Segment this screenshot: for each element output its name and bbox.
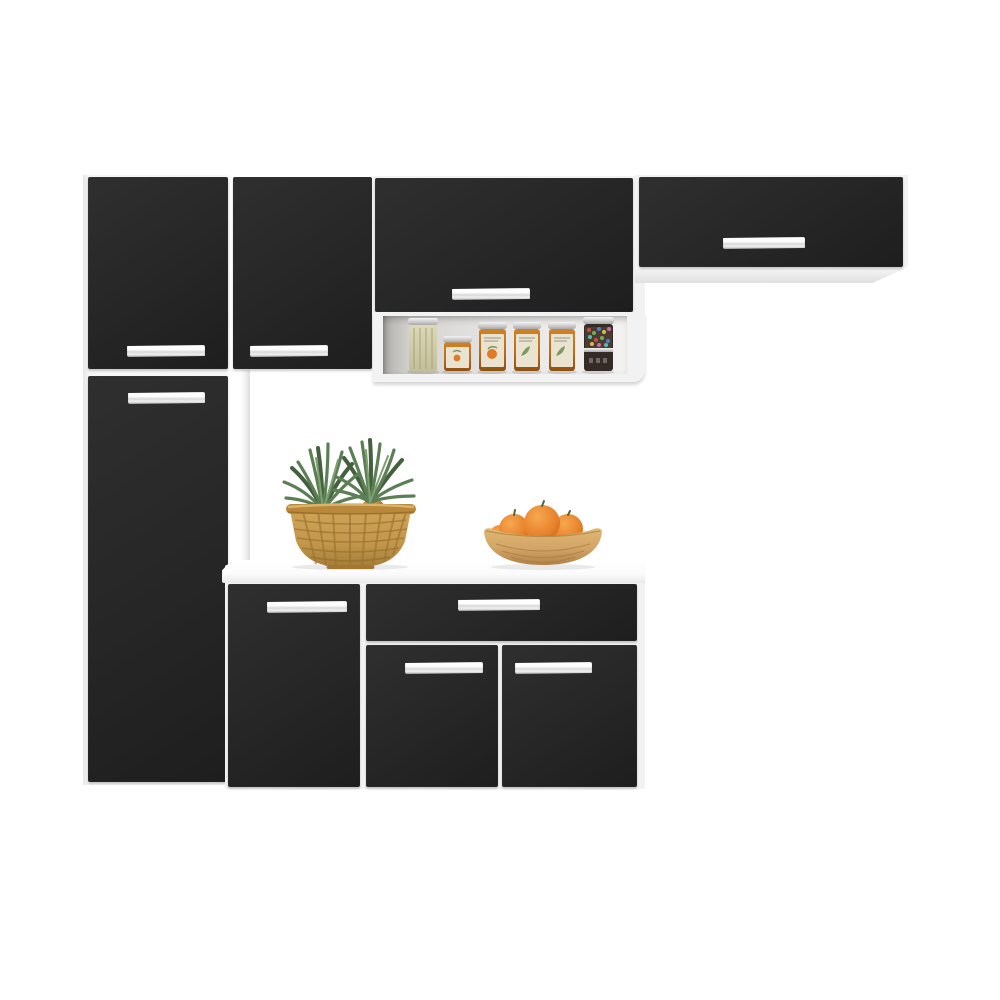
right-cabinet-door (639, 177, 903, 267)
right-cabinet-bottom-panel (635, 267, 908, 283)
support-post (228, 370, 250, 570)
jar-amber-2 (513, 322, 541, 371)
jar-shadows (407, 370, 614, 374)
drawer-handle (458, 599, 540, 611)
tall-upper-door-handle (127, 345, 205, 357)
jar-amber-small (443, 336, 472, 371)
pineapple-basket (278, 438, 423, 570)
middle-door-handle (452, 288, 530, 300)
tall-cabinet-lower-door (88, 376, 228, 782)
tall-cabinet-upper-door (88, 177, 228, 369)
jar-amber-1 (478, 322, 507, 371)
jar-candy (583, 317, 614, 371)
base-left-door (228, 584, 360, 787)
right-door-handle (723, 237, 805, 249)
wicker-basket (286, 504, 416, 569)
drawer-front (366, 584, 637, 641)
upper-door-2 (233, 177, 372, 369)
orange-bowl (478, 496, 608, 570)
base-bottom-left-door-handle (405, 662, 483, 674)
open-shelf (373, 312, 645, 382)
pineapple-leaves (284, 440, 414, 510)
base-left-door-handle (267, 601, 347, 613)
tall-lower-door-handle (128, 392, 205, 404)
jar-glass (408, 318, 438, 371)
pantry-jars (383, 316, 627, 374)
shelf-niche (383, 316, 627, 374)
base-bottom-right-door-handle (515, 662, 592, 674)
upper-door-2-handle (250, 345, 328, 357)
jar-amber-3 (548, 322, 576, 371)
product-photo (0, 0, 1000, 1000)
